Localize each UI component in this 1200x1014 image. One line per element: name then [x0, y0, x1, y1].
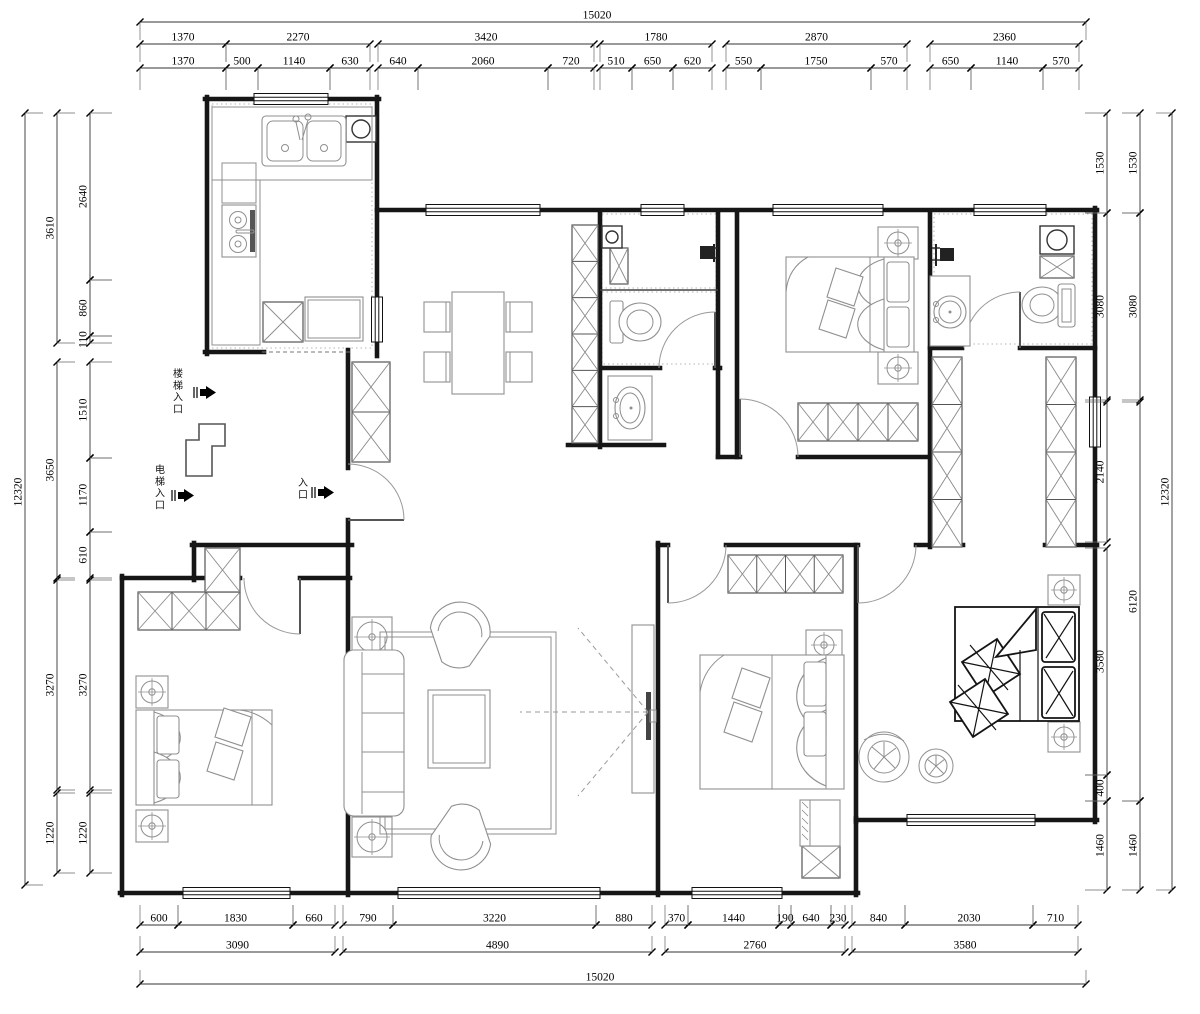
window	[426, 205, 540, 216]
dim-label: 6120	[1128, 590, 1140, 613]
dim-label: 3090	[226, 940, 249, 952]
dim-label: 3580	[954, 940, 977, 952]
dim-label: 2140	[1095, 460, 1107, 483]
door-swing	[858, 545, 916, 603]
door-swing	[668, 545, 726, 603]
dim-label: 1780	[645, 32, 668, 44]
window	[183, 888, 290, 899]
sofa	[344, 650, 404, 816]
stair-core-outline	[186, 424, 225, 476]
dim-label: 570	[1052, 56, 1070, 68]
window	[1090, 397, 1101, 447]
kitchen-sink	[262, 114, 346, 166]
dim-label: 3220	[483, 913, 506, 925]
dim-label: 3420	[475, 32, 498, 44]
dim-label: 550	[735, 56, 753, 68]
text-label: 电	[155, 463, 165, 476]
toilet	[610, 301, 661, 343]
dim-label: 570	[880, 56, 898, 68]
window	[907, 815, 1035, 826]
dim-label: 3080	[1095, 295, 1107, 318]
text-label: 入	[173, 393, 183, 404]
dim-label: 1220	[45, 821, 57, 844]
dim-label: 3080	[1128, 295, 1140, 318]
dim-label: 840	[870, 913, 888, 925]
fridge	[305, 297, 363, 341]
door-swing	[740, 399, 798, 457]
dim-label: 630	[341, 56, 359, 68]
floor-plan-drawing: 1502013702270342017802870236013705001140…	[0, 0, 1200, 1014]
dim-label: 650	[942, 56, 960, 68]
text-label: 口	[173, 404, 183, 415]
entrance-arrow-icon	[312, 486, 334, 499]
pillow	[804, 662, 826, 706]
window	[692, 888, 782, 899]
dim-label: 370	[668, 913, 686, 925]
entrance-arrow-icon	[184, 489, 194, 502]
armchair	[427, 800, 496, 874]
dim-label: 640	[389, 56, 407, 68]
dim-label: 620	[684, 56, 702, 68]
dim-label: 3270	[78, 673, 90, 696]
dim-label: 650	[644, 56, 662, 68]
dim-label: 2760	[744, 940, 767, 952]
dim-label: 1530	[1095, 151, 1107, 174]
dim-label: 1370	[172, 56, 195, 68]
duct	[602, 226, 622, 248]
dim-label: 790	[359, 913, 377, 925]
bed-left-bedroom	[136, 708, 272, 805]
dim-label: 3580	[1095, 650, 1107, 673]
text-label: 梯	[155, 475, 165, 488]
text-label: 梯	[173, 379, 183, 392]
window	[641, 205, 684, 216]
dim-label: 1460	[1095, 834, 1107, 857]
dim-label: 1370	[172, 32, 195, 44]
window	[372, 297, 383, 342]
dim-label: 610	[78, 546, 90, 564]
text-label: 口	[155, 500, 165, 511]
entrance-arrow-icon	[172, 489, 194, 502]
tv-stand	[632, 625, 656, 793]
armchair	[425, 598, 494, 672]
pillow	[157, 760, 179, 798]
vanity-sink	[608, 376, 652, 440]
entrance-arrow-icon	[194, 386, 216, 399]
bed-top-bedroom	[786, 257, 914, 352]
dim-label: 1140	[996, 56, 1019, 68]
dim-label: 2270	[287, 32, 310, 44]
pillow	[157, 716, 179, 754]
dim-label: 3270	[45, 673, 57, 696]
dim-label: 640	[802, 913, 820, 925]
dim-label: 860	[78, 299, 90, 317]
door-swing	[964, 292, 1020, 348]
kitchen-appliance	[222, 163, 256, 203]
door-swing	[659, 312, 715, 368]
dim-label: 2870	[805, 32, 828, 44]
dim-label: 1140	[283, 56, 306, 68]
bed-master-bedroom	[950, 607, 1079, 737]
vanity-sink	[930, 276, 970, 346]
dim-label: 1460	[1128, 834, 1140, 857]
shower-icon	[700, 244, 718, 262]
window	[773, 205, 883, 216]
dim-label: 12320	[13, 477, 25, 506]
dim-label: 720	[562, 56, 580, 68]
door-swing	[244, 578, 300, 634]
floor-plan-page: 1502013702270342017802870236013705001140…	[0, 0, 1200, 1014]
entrance-arrow-icon	[178, 492, 184, 499]
dim-label: 2640	[78, 185, 90, 208]
dim-label: 660	[305, 913, 323, 925]
bed-middle-bedroom	[700, 655, 844, 789]
shower-icon	[932, 244, 954, 266]
washing-machine	[800, 800, 840, 846]
toilet	[1022, 284, 1075, 327]
dim-label: 15020	[586, 972, 615, 984]
dim-label: 1440	[722, 913, 745, 925]
dim-label: 880	[615, 913, 633, 925]
entrance-arrow-icon	[200, 389, 206, 396]
dim-label: 110	[78, 331, 90, 348]
dim-label: 1170	[78, 483, 90, 506]
coffee-table	[428, 690, 490, 768]
pillow	[1042, 667, 1075, 718]
dim-label: 510	[607, 56, 625, 68]
dim-label: 4890	[486, 940, 509, 952]
plant	[859, 732, 909, 782]
dim-label: 2360	[993, 32, 1016, 44]
pillow	[804, 712, 826, 756]
sight-line-layer	[520, 628, 648, 796]
duct-layer	[346, 116, 1074, 254]
dim-label: 600	[150, 913, 168, 925]
dim-label: 2060	[472, 56, 495, 68]
plant	[919, 749, 953, 783]
dim-label: 400	[1095, 779, 1107, 797]
text-label: 入	[298, 478, 308, 489]
text-label: 入	[155, 489, 165, 500]
door-swing	[348, 464, 404, 520]
dim-label: 230	[829, 913, 847, 925]
dim-label: 15020	[583, 10, 612, 22]
dim-label: 1530	[1128, 151, 1140, 174]
window	[398, 888, 600, 899]
window	[254, 94, 328, 105]
dim-label: 3650	[45, 458, 57, 481]
kitchen-stove	[222, 205, 256, 257]
dim-label: 1510	[78, 398, 90, 421]
entrance-arrow-icon	[206, 386, 216, 399]
text-label: 口	[298, 490, 308, 501]
dim-label: 2030	[958, 913, 981, 925]
pillow	[1042, 612, 1075, 662]
dim-label: 1830	[224, 913, 247, 925]
entrance-arrow-icon	[318, 489, 324, 496]
entrance-arrow-icon	[324, 486, 334, 499]
dim-label: 3610	[45, 216, 57, 239]
dim-label: 500	[233, 56, 251, 68]
text-label: 楼	[173, 367, 183, 380]
pillow	[887, 262, 909, 302]
dim-label: 1220	[78, 821, 90, 844]
dim-label: 710	[1047, 913, 1065, 925]
dim-label: 12320	[1160, 477, 1172, 506]
dining-table	[424, 292, 532, 394]
window	[974, 205, 1046, 216]
dim-label: 1750	[805, 56, 828, 68]
pillow	[887, 307, 909, 347]
